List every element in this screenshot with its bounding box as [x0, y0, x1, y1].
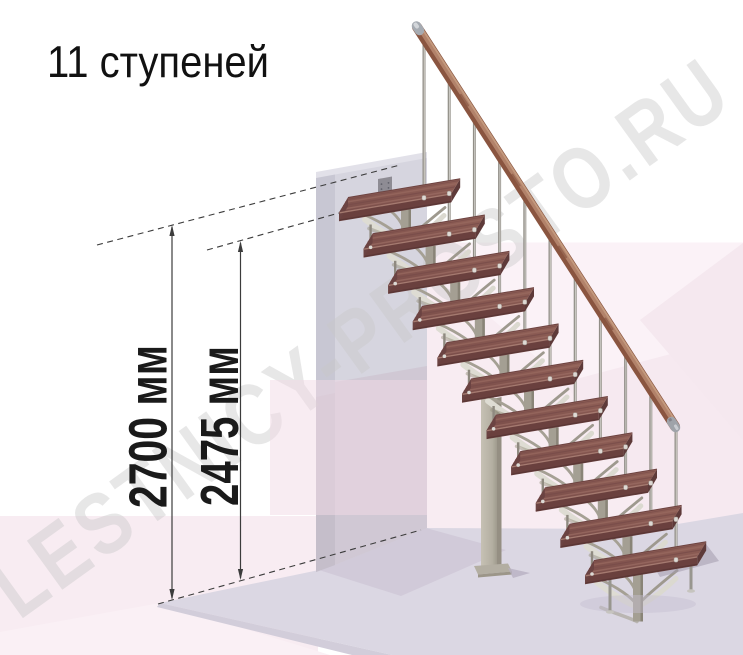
svg-text:11 ступеней: 11 ступеней	[47, 38, 269, 87]
svg-text:2700 мм: 2700 мм	[119, 345, 179, 508]
svg-text:2475 мм: 2475 мм	[190, 346, 250, 506]
